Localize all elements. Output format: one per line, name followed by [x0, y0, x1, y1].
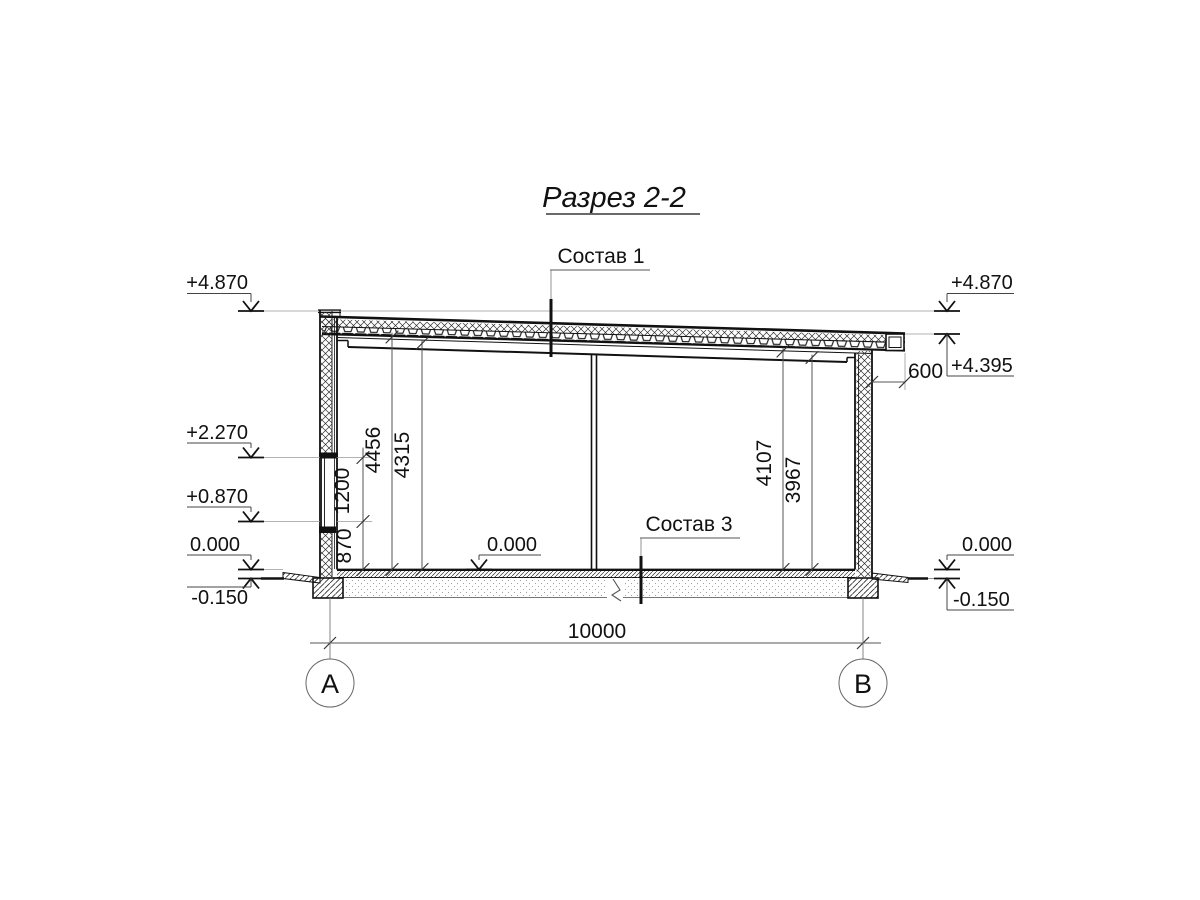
- girder-corbel-right: [847, 358, 855, 363]
- elevation-arrow-down-icon: [243, 560, 259, 570]
- mark-shelf: [187, 579, 251, 588]
- mark-text: +0.870: [186, 486, 248, 508]
- girder-bottom-line: [348, 347, 847, 362]
- drawing-sheet: Разрез 2-2: [0, 0, 1200, 900]
- dim-text-870: 870: [333, 528, 356, 563]
- mark-text: +4.395: [951, 355, 1013, 377]
- dim-text-10000: 10000: [568, 620, 626, 643]
- fascia-box-inner: [889, 337, 901, 348]
- floor-screed-hatch: [337, 571, 855, 578]
- elevation-arrow-down-icon: [471, 560, 487, 570]
- elevation-arrow-down-icon: [939, 560, 955, 570]
- elevation-mark-left-4870: +4.870: [186, 272, 264, 311]
- dim-span-10000: 10000: [310, 620, 881, 649]
- elevation-mark-left-0870: +0.870: [186, 486, 320, 522]
- building-section: [251, 310, 960, 601]
- window-glazing-lines: [322, 459, 325, 527]
- elevation-mark-left-zero: 0.000: [187, 534, 283, 570]
- axis-label-a: A: [321, 669, 339, 699]
- dim-overhang-600: 600: [866, 353, 943, 390]
- mark-text: -0.150: [191, 587, 248, 609]
- floor-base-stipple: [343, 578, 848, 598]
- mark-text: 0.000: [962, 534, 1012, 556]
- elevation-mark-right-zero: 0.000: [934, 534, 1014, 570]
- elevation-mark-left-2270: +2.270: [186, 422, 320, 458]
- dim-text-4107: 4107: [753, 440, 776, 487]
- axis-label-b: B: [854, 669, 872, 699]
- mark-text: 0.000: [487, 534, 537, 556]
- section-drawing-2-2: Разрез 2-2: [0, 0, 1200, 900]
- dim-text-4456: 4456: [362, 427, 385, 474]
- mark-text: +4.870: [186, 272, 248, 294]
- sostav1-label: Состав 1: [557, 245, 644, 268]
- girder-corbel-left: [337, 341, 348, 348]
- dim-chain-left: 870 1200 4456 4315: [331, 331, 428, 576]
- middle-column: [592, 355, 597, 570]
- mark-text: -0.150: [953, 589, 1010, 611]
- mark-text: +4.870: [951, 272, 1013, 294]
- elevation-arrow-down-icon: [243, 512, 259, 522]
- elevation-mark-right-minus-0150: -0.150: [934, 579, 1014, 612]
- dim-text-3967: 3967: [782, 457, 805, 504]
- title-text: Разрез 2-2: [542, 182, 686, 214]
- left-wall-hatch-upper: [321, 312, 332, 453]
- elevation-arrow-down-icon: [939, 301, 955, 311]
- dim-text-600: 600: [908, 360, 943, 383]
- mark-text: +2.270: [186, 422, 248, 444]
- foundation-right: [848, 578, 878, 598]
- elevation-mark-center-zero: 0.000: [466, 534, 541, 570]
- elevation-arrow-down-icon: [243, 301, 259, 311]
- left-wall-hatch-lower: [321, 533, 332, 577]
- dim-text-1200: 1200: [331, 468, 354, 515]
- axis-a: A: [306, 598, 354, 707]
- elevation-mark-right-4870: +4.870: [934, 272, 1014, 311]
- axis-b: B: [839, 598, 887, 707]
- elevation-arrow-down-icon: [243, 448, 259, 458]
- elevation-mark-right-4395: +4.395: [934, 334, 1014, 377]
- blind-area-left: [283, 573, 320, 584]
- mark-text: 0.000: [190, 534, 240, 556]
- drawing-title: Разрез 2-2: [542, 182, 700, 214]
- mark-shelf: [947, 294, 1014, 303]
- sostav3-label: Состав 3: [645, 513, 732, 536]
- dim-text-4315: 4315: [391, 432, 414, 479]
- dim-chain-right: 4107 3967: [753, 345, 818, 576]
- elevation-mark-left-minus-0150: -0.150: [187, 579, 264, 610]
- mark-shelf: [187, 294, 251, 303]
- window-lintel: [319, 453, 338, 459]
